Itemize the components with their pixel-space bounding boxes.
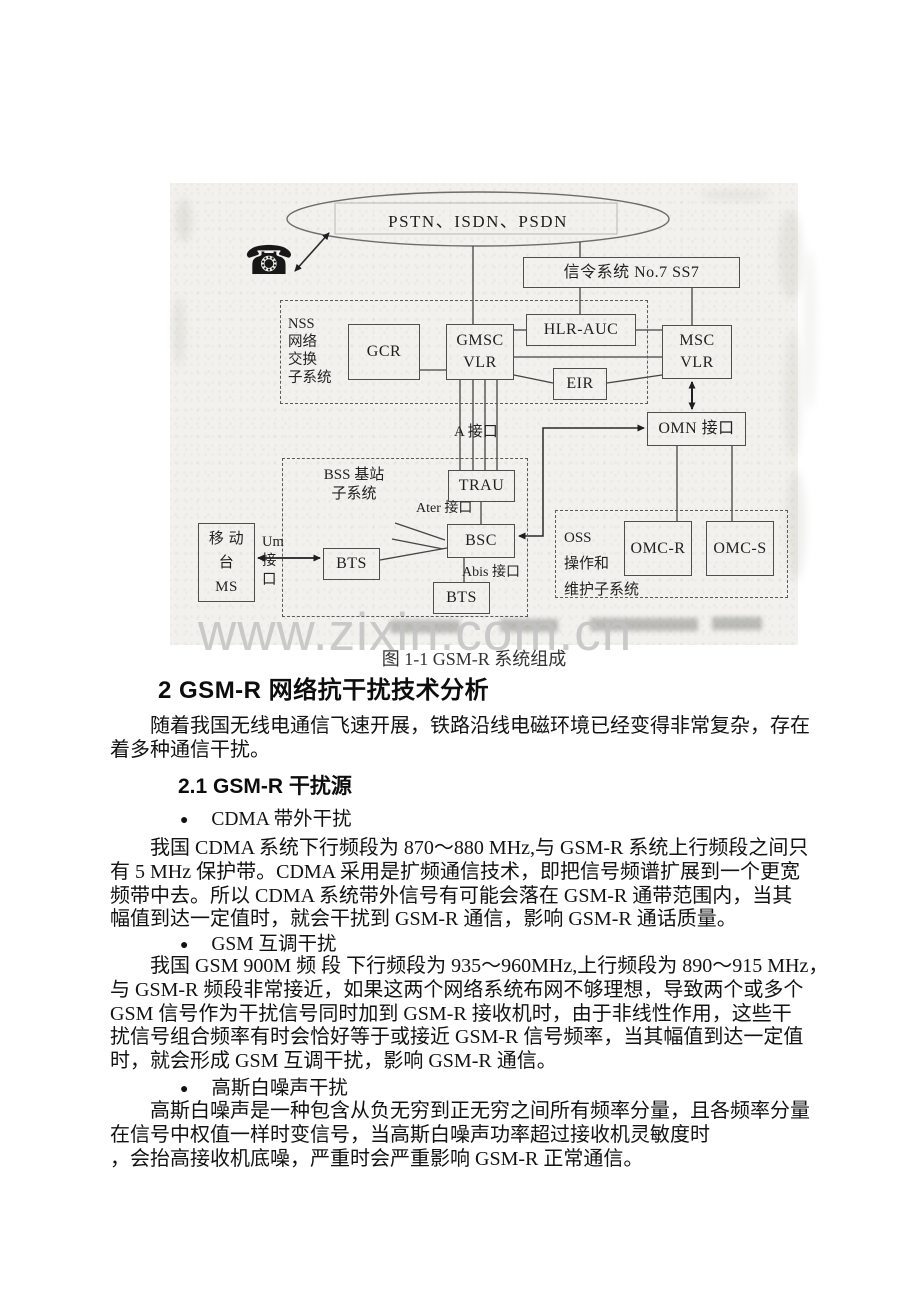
um-interface-label: Um接口 (262, 533, 284, 590)
bullet-item-cdma: ● CDMA 带外干扰 (180, 808, 352, 833)
bss-subsystem-label: BSS 基站子系统 (306, 466, 402, 504)
bullet-item-gaussian: ● 高斯白噪声干扰 (180, 1077, 348, 1102)
paragraph-line: 在信号中权值一样时变信号，当高斯白噪声功率超过接收机灵敏度时 (110, 1124, 822, 1148)
paragraph-line: 我国 CDMA 系统下行频段为 870～880 MHz,与 GSM-R 系统上行… (110, 837, 822, 861)
paragraph-line: 着多种通信干扰。 (110, 739, 822, 763)
paragraph-line: 我国 GSM 900M 频 段 下行频段为 935～960MHz,上行频段为 8… (110, 955, 822, 979)
subsection-heading: 2.1 GSM-R 干扰源 (178, 770, 352, 800)
a-interface-label: A 接口 (454, 423, 498, 441)
figure-caption: 图 1-1 GSM-R 系统组成 (160, 645, 788, 671)
bullet-label: GSM 互调干扰 (211, 934, 336, 955)
omc-s-box: OMC-S (706, 521, 774, 576)
ater-interface-label: Ater 接口 (416, 500, 472, 518)
msc-vlr-box: MSC VLR (662, 325, 732, 379)
intro-paragraph: 随着我国无线电通信飞速开展，铁路沿线电磁环境已经变得非常复杂，存在 着多种通信干… (110, 715, 822, 763)
paragraph-line: 有 5 MHz 保护带。CDMA 采用是扩频通信技术，即把信号频谱扩展到一个更宽 (110, 861, 822, 885)
bullet-icon: ● (180, 809, 188, 833)
paragraph-line: 时，就会形成 GSM 互调干扰，影响 GSM-R 通信。 (110, 1050, 822, 1074)
paragraph-line: ，会抬高接收机底噪，严重时会严重影响 GSM-R 正常通信。 (110, 1148, 822, 1172)
paragraph-line: GSM 信号作为干扰信号同时加到 GSM-R 接收机时，由于非线性作用，这些干 (110, 1003, 822, 1027)
gaussian-paragraph: 高斯白噪声是一种包含从负无穷到正无穷之间所有频率分量，且各频率分量 在信号中权值… (110, 1100, 822, 1171)
section-heading: 2 GSM-R 网络抗干扰技术分析 (158, 670, 489, 705)
oss-subsystem-label: OSS操作和维护子系统 (564, 525, 639, 603)
bullet-label: 高斯白噪声干扰 (211, 1078, 348, 1099)
paragraph-line: 频带中去。所以 CDMA 系统带外信号有可能会落在 GSM-R 通带范围内，当其 (110, 885, 822, 909)
cdma-paragraph: 我国 CDMA 系统下行频段为 870～880 MHz,与 GSM-R 系统上行… (110, 837, 822, 932)
paragraph-line: 高斯白噪声是一种包含从负无穷到正无穷之间所有频率分量，且各频率分量 (110, 1100, 822, 1124)
mobile-station-box: 移 动 台 MS (198, 523, 255, 602)
gmsc-vlr-box: GMSC VLR (446, 324, 514, 380)
paragraph-line: 随着我国无线电通信飞速开展，铁路沿线电磁环境已经变得非常复杂，存在 (110, 715, 822, 739)
figure-scan-region: PSTN、ISDN、PSDN ☎ 信令系统 No.7 SS7 GCR GMSC … (170, 183, 798, 645)
gcr-box: GCR (348, 324, 420, 380)
gsm-paragraph: 我国 GSM 900M 频 段 下行频段为 935～960MHz,上行频段为 8… (110, 955, 822, 1074)
bts-left-box: BTS (323, 548, 380, 580)
paragraph-line: 扰信号组合频率有时会恰好等于或接近 GSM-R 信号频率，当其幅值到达一定值 (110, 1026, 822, 1050)
hlr-auc-box: HLR-AUC (526, 314, 636, 346)
bullet-label: CDMA 带外干扰 (211, 809, 351, 830)
ss7-box: 信令系统 No.7 SS7 (523, 257, 740, 288)
phone-cloud-arrow (295, 233, 329, 271)
paragraph-line: 与 GSM-R 频段非常接近，如果这两个网络系统布网不够理想，导致两个或多个 (110, 979, 822, 1003)
omn-interface-box: OMN 接口 (647, 412, 746, 446)
pstn-cloud-label: PSTN、ISDN、PSDN (288, 207, 668, 232)
telephone-icon: ☎ (244, 241, 294, 281)
abis-interface-label: Abis 接口 (462, 564, 520, 582)
nss-subsystem-label: NSS网络 交换子系统 (288, 315, 332, 387)
document-page: PSTN、ISDN、PSDN ☎ 信令系统 No.7 SS7 GCR GMSC … (0, 0, 920, 1302)
eir-box: EIR (553, 368, 607, 400)
trau-box: TRAU (448, 470, 515, 502)
paragraph-line: 幅值到达一定值时，就会干扰到 GSM-R 通信，影响 GSM-R 通话质量。 (110, 908, 822, 932)
bullet-icon: ● (180, 1078, 188, 1102)
bsc-box: BSC (447, 524, 515, 558)
